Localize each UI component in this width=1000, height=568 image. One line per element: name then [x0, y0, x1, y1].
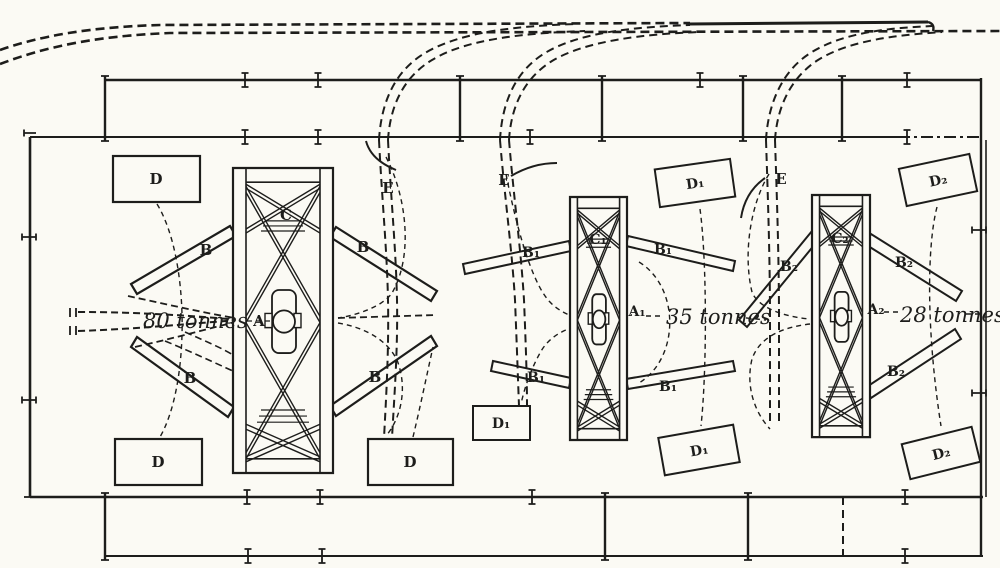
branch3-merge-b — [775, 32, 942, 140]
crane3-jib-top-right — [865, 234, 962, 301]
crane3-platform-top-right: D₂ — [899, 154, 977, 206]
crane2-platform-label: D₁ — [685, 175, 705, 193]
branch3-switch-curve — [741, 178, 765, 218]
crane3-frame-label: C₂ — [831, 231, 848, 247]
lead-track-end-ticks — [70, 308, 76, 335]
crane2-jib-top-right — [626, 236, 735, 271]
crane3-jib-label: B₂ — [780, 259, 798, 275]
crane1-jib-bottom-right — [330, 336, 437, 416]
crane2-jib-top-left — [463, 241, 571, 274]
crane2-jib-bottom-right — [626, 361, 735, 389]
branch2-switch-curve — [511, 163, 557, 176]
crane1-jib-label: B — [184, 369, 197, 387]
crane2-platform-top-right: D₁ — [655, 159, 736, 207]
lead-track-right — [338, 315, 436, 318]
crane2-platform-bottom-right: D₁ — [658, 425, 739, 476]
crane2-jib-label: B₁ — [522, 245, 540, 261]
diagram-canvas: D₁ D₁ D₂ D₂ 80 tonnes A C B B B B D D D … — [0, 0, 1000, 568]
crane1-frame-label: C — [280, 206, 292, 224]
crane1-jib-top-right — [330, 227, 437, 301]
crane2-platform-label: D₁ — [492, 416, 510, 432]
branch2-merge-b — [509, 32, 700, 140]
crane3-jib-bottom-right — [865, 329, 961, 398]
rail-upper-solid — [688, 22, 928, 24]
branch1-switch-curve — [366, 141, 396, 170]
crane2-capacity: 35 tonnes — [666, 305, 771, 329]
crane2-jib-label: B₁ — [654, 242, 672, 258]
crane1-platform-label: D — [151, 453, 164, 471]
crane1-platform-label: D — [403, 453, 416, 471]
crane1-jib-top-left — [131, 226, 236, 294]
branch1-merge-a — [379, 24, 575, 140]
lead-fan-5 — [185, 332, 233, 355]
crane1-jib-label: B — [200, 241, 213, 259]
crane1-pivot-label: A — [252, 312, 265, 330]
crane2-frame-label: C₁ — [589, 232, 606, 248]
crane2-pivot-label: A₁ — [628, 304, 646, 320]
crane1-jib-label: B — [369, 368, 382, 386]
crane3-jib-label: B₂ — [895, 255, 913, 271]
crane1-platform-label: D — [149, 170, 162, 188]
crane1-capacity: 80 tonnes — [143, 309, 248, 333]
crane2-jib-label: B₁ — [659, 379, 677, 395]
crane3-platform-bottom-right: D₂ — [902, 427, 981, 479]
branch2-merge-a — [500, 25, 690, 140]
crane1-jib-bottom-left — [131, 337, 234, 417]
crane3-pivot-label: A₂ — [867, 302, 885, 318]
siding-label: E — [775, 170, 786, 188]
upper-posts — [101, 76, 846, 141]
crane3-jib-label: B₂ — [887, 364, 905, 380]
branch1-merge-b — [388, 31, 585, 140]
siding-label: E — [498, 171, 509, 189]
siding-label: E — [382, 179, 393, 197]
crane2-platform-label: D₁ — [689, 442, 710, 461]
crane3-capacity: 28 tonnes — [899, 303, 1000, 327]
crane1-jib-label: B — [357, 238, 370, 256]
engraving-plan-quay-cranes: D₁ D₁ D₂ D₂ 80 tonnes A C B B B B D D D … — [0, 0, 1000, 568]
lower-posts — [101, 493, 843, 560]
crane2-jib-label: B₁ — [527, 370, 545, 386]
